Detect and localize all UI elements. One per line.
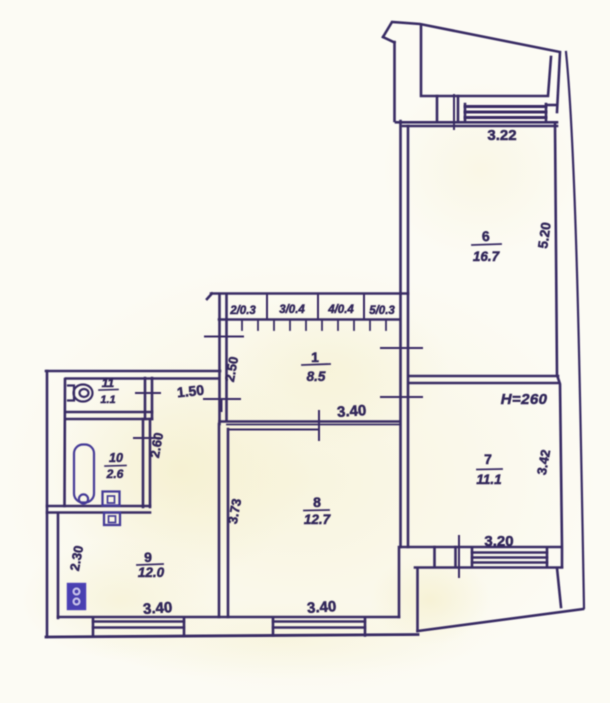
svg-text:12.0: 12.0	[138, 565, 165, 580]
svg-text:7: 7	[484, 451, 492, 467]
svg-text:1.50: 1.50	[176, 382, 205, 401]
svg-text:3.20: 3.20	[484, 533, 513, 550]
svg-text:2.6: 2.6	[106, 467, 124, 481]
svg-text:8: 8	[313, 494, 321, 510]
svg-text:8.5: 8.5	[307, 369, 326, 384]
svg-text:4/0.4: 4/0.4	[327, 304, 354, 316]
svg-text:16.7: 16.7	[473, 249, 501, 264]
svg-text:3.22: 3.22	[487, 127, 516, 144]
svg-text:1.1: 1.1	[100, 394, 115, 406]
svg-text:3.40: 3.40	[337, 402, 367, 421]
svg-text:5/0.3: 5/0.3	[369, 305, 395, 317]
svg-text:1: 1	[311, 349, 319, 365]
svg-text:12.7: 12.7	[304, 512, 332, 527]
svg-text:3.40: 3.40	[307, 598, 337, 617]
svg-text:10: 10	[109, 451, 123, 465]
svg-text:2/0.3: 2/0.3	[229, 305, 256, 317]
svg-text:11: 11	[102, 376, 115, 390]
svg-text:3.40: 3.40	[143, 599, 173, 618]
svg-text:9: 9	[144, 549, 152, 565]
svg-text:3/0.4: 3/0.4	[279, 304, 305, 316]
svg-text:11.1: 11.1	[476, 472, 501, 487]
svg-text:H=260: H=260	[501, 391, 548, 408]
svg-text:6: 6	[481, 228, 490, 244]
